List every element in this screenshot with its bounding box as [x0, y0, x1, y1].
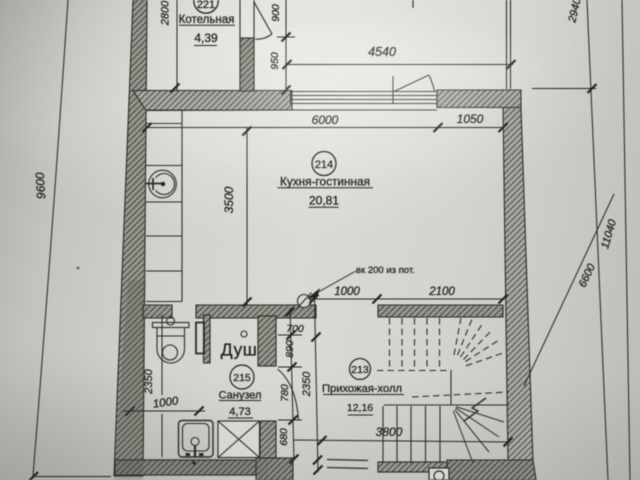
svg-text:11040: 11040: [599, 217, 619, 250]
svg-text:700: 700: [286, 323, 304, 335]
svg-text:2350: 2350: [143, 368, 155, 394]
svg-text:780: 780: [279, 384, 291, 402]
svg-text:2940: 2940: [566, 0, 584, 25]
svg-text:9600: 9600: [33, 172, 48, 200]
svg-text:Душ: Душ: [221, 340, 258, 360]
svg-text:6600: 6600: [577, 261, 599, 289]
svg-text:4,39: 4,39: [194, 31, 218, 45]
svg-text:221: 221: [197, 0, 215, 11]
svg-text:4,73: 4,73: [229, 406, 250, 418]
svg-text:213: 213: [351, 364, 369, 376]
svg-text:2100: 2100: [428, 286, 455, 298]
svg-text:2350: 2350: [301, 371, 313, 397]
svg-text:20,81: 20,81: [309, 194, 339, 208]
svg-text:Прихожая-холл: Прихожая-холл: [322, 383, 402, 395]
svg-text:2800: 2800: [160, 0, 172, 26]
svg-text:12,16: 12,16: [347, 402, 373, 414]
svg-text:900: 900: [270, 4, 282, 22]
svg-text:вк 200 из пот.: вк 200 из пот.: [356, 265, 415, 276]
svg-text:3500: 3500: [222, 186, 236, 213]
svg-text:1000: 1000: [334, 286, 360, 298]
svg-text:680: 680: [278, 428, 290, 446]
svg-text:215: 215: [233, 372, 251, 384]
svg-text:1000: 1000: [152, 395, 180, 411]
svg-text:3800: 3800: [376, 425, 403, 439]
svg-text:Санузел: Санузел: [219, 390, 262, 402]
svg-text:Котельная: Котельная: [179, 14, 235, 26]
svg-text:890: 890: [284, 340, 296, 358]
